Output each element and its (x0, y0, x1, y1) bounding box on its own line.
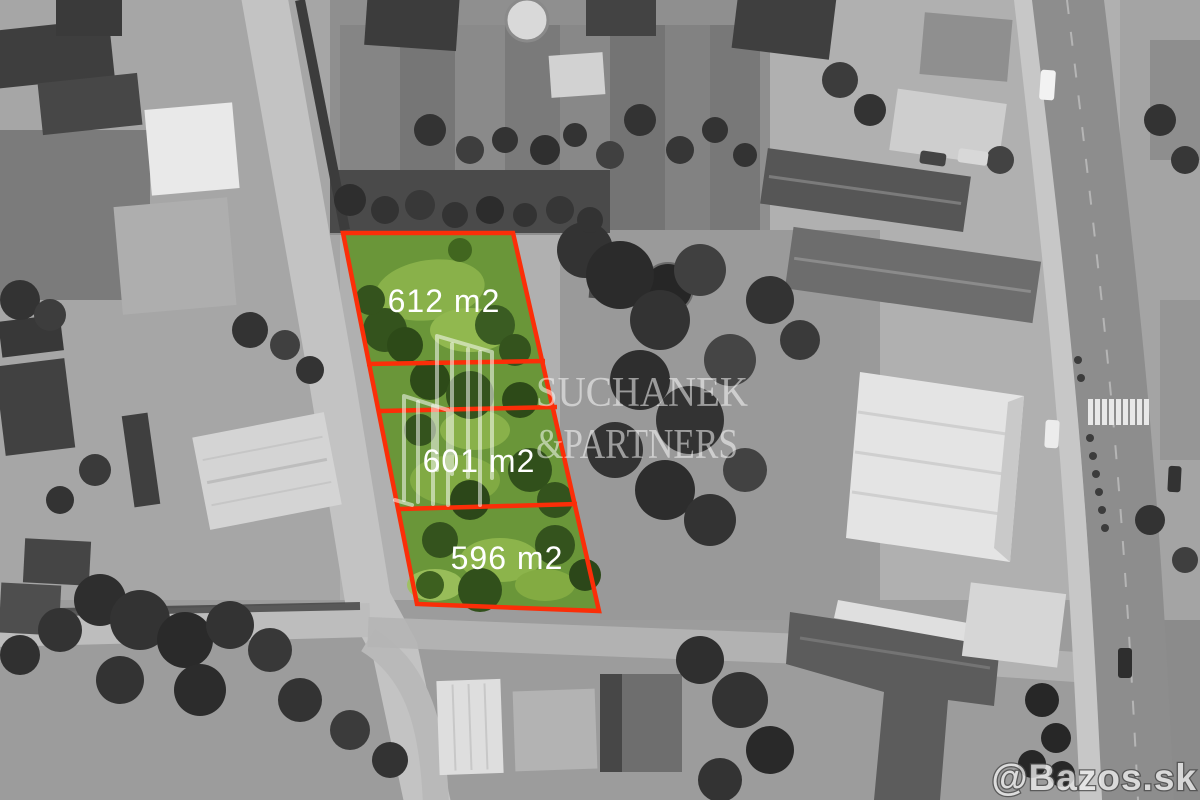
white-flat-roof-house (144, 102, 239, 195)
plot-1-divider (367, 361, 545, 364)
crosswalk (1088, 399, 1149, 425)
plot-1-area-label: 612 m2 (388, 283, 501, 319)
aerial-photo: 612 m2 601 m2 596 m2 SUCHANEK &PARTNERS … (0, 0, 1200, 800)
pool-circle (506, 0, 548, 41)
bazos-watermark: @Bazos.sk (992, 757, 1198, 798)
agency-name-line1: SUCHANEK (536, 370, 748, 416)
aerial-photo-canvas: 612 m2 601 m2 596 m2 SUCHANEK &PARTNERS … (0, 0, 1200, 800)
agency-name-line2: &PARTNERS (536, 422, 738, 468)
bottom-white-house (436, 679, 503, 775)
plot-3-area-label: 596 m2 (451, 540, 564, 576)
white-hall (846, 372, 1024, 562)
